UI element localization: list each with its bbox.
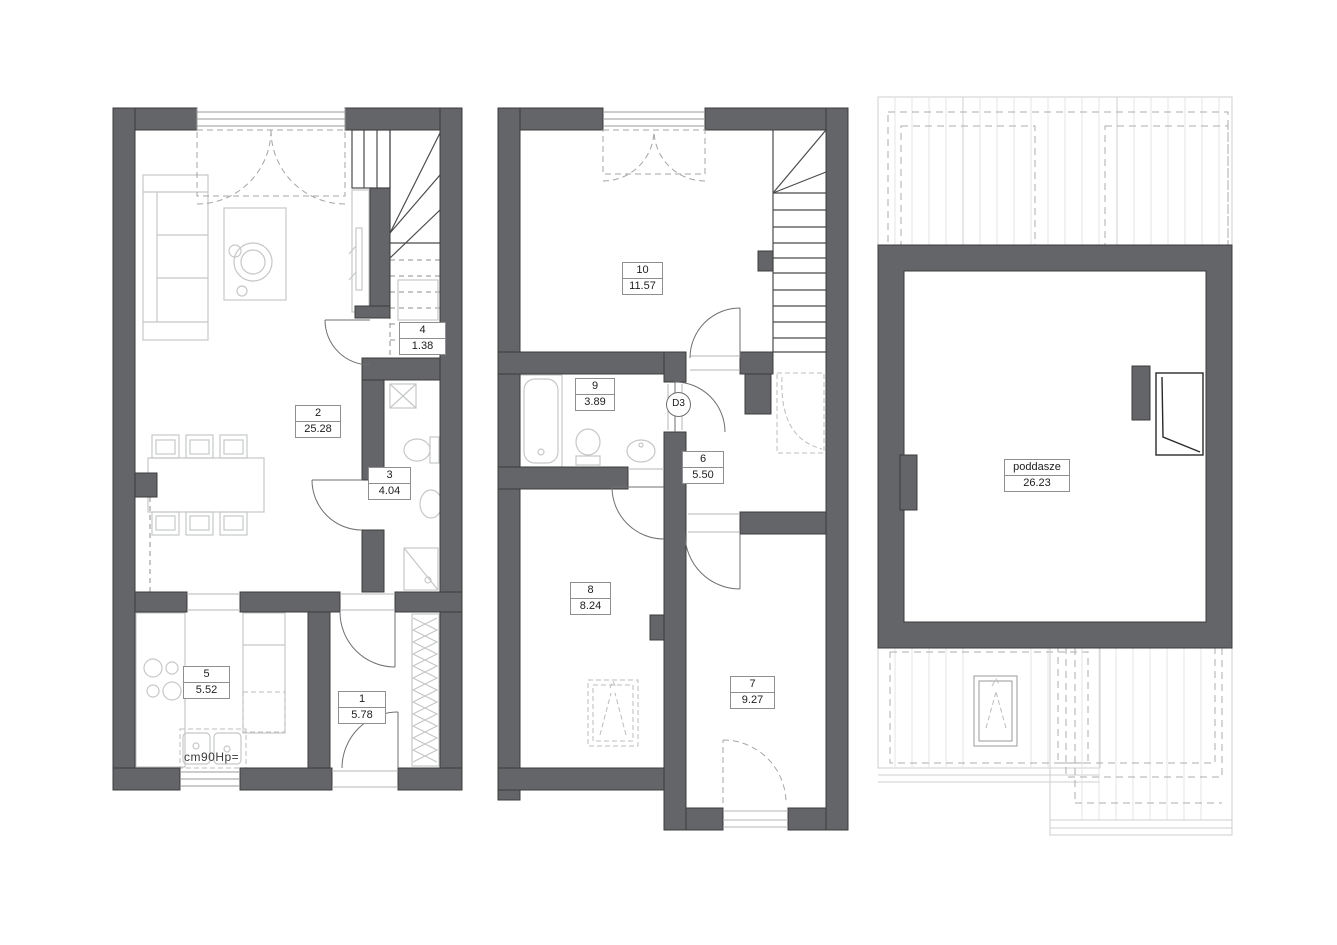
room-label-4: 4 1.38 [399,322,446,355]
room-label-6: 6 5.50 [682,451,724,484]
room-area: 26.23 [1005,476,1069,491]
room-label-1: 1 5.78 [338,691,386,724]
wardrobe-dashed [777,373,824,453]
toilet [404,437,439,463]
tv-cabinet [349,190,369,312]
room-number: 5 [184,667,229,683]
room-area: 5.78 [339,708,385,723]
room-number: 3 [369,468,410,484]
room-number: 10 [623,263,662,279]
room-label-8: 8 8.24 [570,582,611,615]
washing-machine [390,384,416,408]
room-number: 2 [296,406,340,422]
attic-skylight [974,676,1017,746]
terrace-window [197,108,345,130]
room-area: 5.52 [184,683,229,698]
room-number: poddasze [1005,460,1069,476]
first-thresholds [628,356,788,827]
room-area: 25.28 [296,422,340,437]
bathroom-door-ground [312,480,362,530]
hall-door [340,612,395,667]
room-label-9: 9 3.89 [575,378,615,411]
room7-door [685,534,740,589]
toilet-first [576,429,600,465]
room-label-5: 5 5.52 [183,666,230,699]
roof-bottom-left [878,648,1100,782]
dining-set [148,435,264,535]
room-label-poddasze: poddasze 26.23 [1004,459,1070,492]
room-number: 6 [683,452,723,468]
room-number: 7 [731,677,774,693]
attic-walls [878,245,1232,648]
room-area: 3.89 [576,395,614,410]
room8-door [612,487,664,539]
room-area: 8.24 [571,599,610,614]
floor-plan-sheet: 1 5.78 2 25.28 3 4.04 4 1.38 5 5.52 cm90… [0,0,1337,945]
stairs-first [773,130,826,352]
ground-floor-plan [113,108,462,790]
room10-door [690,308,740,358]
attic-hatch [1156,373,1203,455]
room-area: 4.04 [369,484,410,499]
roof-top [878,97,1232,245]
door-tag-d3: D3 [666,392,691,417]
room-area: 9.27 [731,693,774,708]
room-number: 4 [400,323,445,339]
first-floor-walls [498,108,848,830]
washbasin [420,490,442,518]
room-label-10: 10 11.57 [622,262,663,295]
washbasin-first [627,440,655,462]
coffee-table [224,208,286,300]
bathtub [520,375,562,467]
room-label-7: 7 9.27 [730,676,775,709]
room7-exterior-door [723,740,786,803]
room-area: 11.57 [623,279,662,294]
sofa [143,175,208,340]
floor-plan-canvas [0,0,1337,945]
room-area: 5.50 [683,468,723,483]
radiator [412,614,439,766]
kitchen-window [180,772,240,786]
room-number: 8 [571,583,610,599]
shower [404,548,438,590]
room-number: 1 [339,692,385,708]
room-number: 9 [576,379,614,395]
first-floor-plan [498,108,848,830]
balcony-door-window [603,112,705,181]
room-label-2: 2 25.28 [295,405,341,438]
roof-bottom-right [1050,648,1232,835]
room-label-3: 3 4.04 [368,467,411,500]
roof-window-room8 [588,680,638,746]
window-sill-note: cm90Hp= [184,750,239,764]
room-area: 1.38 [400,339,445,354]
terrace-door-swing [197,130,345,204]
